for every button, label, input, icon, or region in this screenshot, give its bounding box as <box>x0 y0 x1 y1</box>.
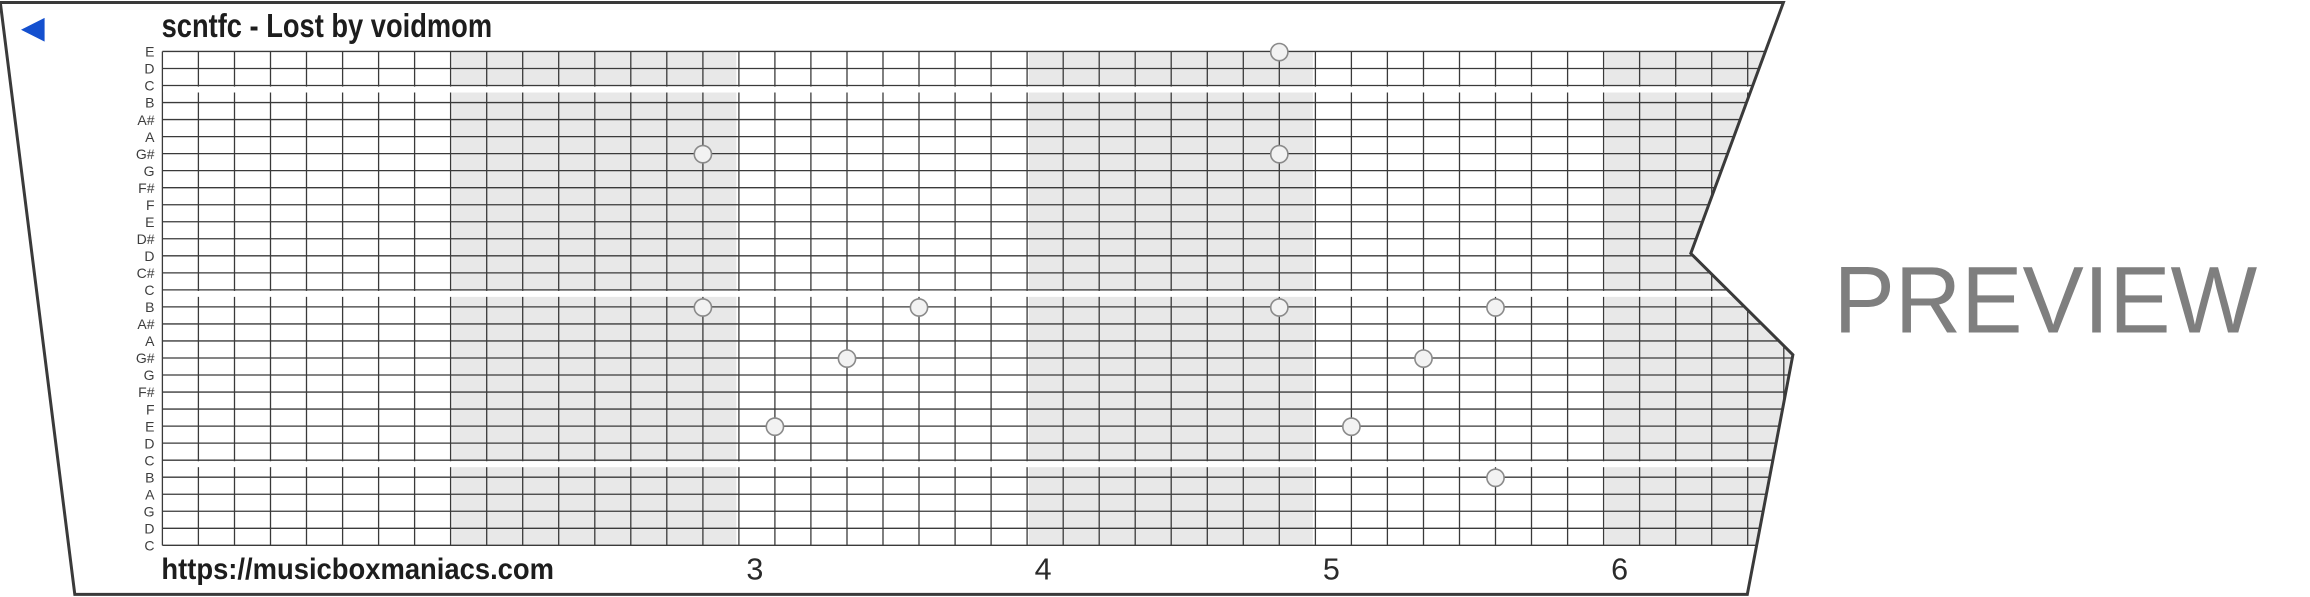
svg-text:https://musicboxmaniacs.com: https://musicboxmaniacs.com <box>161 553 554 586</box>
svg-text:4: 4 <box>1035 552 1052 586</box>
svg-text:B: B <box>145 469 154 485</box>
svg-text:3: 3 <box>746 552 763 586</box>
svg-text:E: E <box>145 214 154 230</box>
svg-text:scntfc - Lost by voidmom: scntfc - Lost by voidmom <box>162 7 493 44</box>
svg-text:G: G <box>144 367 155 383</box>
svg-text:A#: A# <box>137 316 154 332</box>
svg-text:G: G <box>144 163 155 179</box>
svg-text:A: A <box>145 486 155 502</box>
svg-text:5: 5 <box>1323 552 1340 586</box>
svg-text:G: G <box>144 504 155 520</box>
svg-text:C#: C# <box>137 265 155 281</box>
svg-text:B: B <box>145 299 154 315</box>
svg-text:C: C <box>144 538 154 554</box>
svg-text:C: C <box>144 452 154 468</box>
svg-text:F#: F# <box>138 384 155 400</box>
svg-text:A: A <box>145 129 155 145</box>
svg-text:D: D <box>144 248 154 264</box>
svg-text:C: C <box>144 78 154 94</box>
svg-text:PREVIEW: PREVIEW <box>1834 248 2258 354</box>
svg-text:A#: A# <box>137 112 154 128</box>
svg-text:E: E <box>145 44 154 60</box>
svg-text:F: F <box>146 197 155 213</box>
svg-text:F: F <box>146 401 155 417</box>
svg-text:6: 6 <box>1611 552 1628 586</box>
svg-text:D#: D# <box>137 231 155 247</box>
svg-text:D: D <box>144 61 154 77</box>
svg-text:F#: F# <box>138 180 155 196</box>
svg-text:G#: G# <box>136 350 155 366</box>
svg-text:G#: G# <box>136 146 155 162</box>
svg-text:C: C <box>144 282 154 298</box>
svg-text:E: E <box>145 418 154 434</box>
svg-text:D: D <box>144 435 154 451</box>
svg-text:A: A <box>145 333 155 349</box>
svg-text:D: D <box>144 521 154 537</box>
svg-text:B: B <box>145 95 154 111</box>
